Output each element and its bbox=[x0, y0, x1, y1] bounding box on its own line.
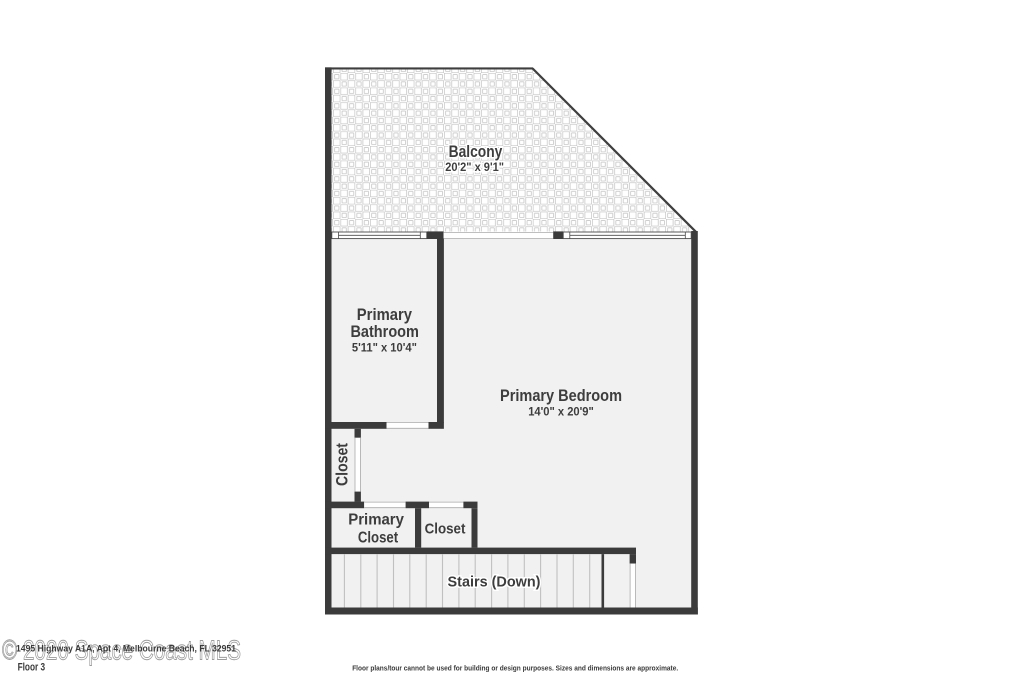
svg-text:Primary: Primary bbox=[348, 512, 404, 529]
svg-text:Floor plans/tour cannot be use: Floor plans/tour cannot be used for buil… bbox=[352, 664, 678, 673]
svg-text:Balcony: Balcony bbox=[449, 143, 503, 161]
svg-text:1495 Highway A1A, Apt 4, Melbo: 1495 Highway A1A, Apt 4, Melbourne Beach… bbox=[16, 644, 236, 654]
svg-text:Floor 3: Floor 3 bbox=[18, 662, 45, 674]
svg-text:14'0" x 20'9": 14'0" x 20'9" bbox=[528, 406, 594, 418]
svg-text:5'11" x 10'4": 5'11" x 10'4" bbox=[352, 342, 417, 354]
svg-text:Bathroom: Bathroom bbox=[350, 323, 419, 341]
svg-text:Primary: Primary bbox=[357, 306, 413, 324]
svg-text:Closet: Closet bbox=[358, 529, 398, 546]
svg-text:Closet: Closet bbox=[333, 443, 352, 486]
svg-text:Primary Bedroom: Primary Bedroom bbox=[500, 387, 622, 405]
svg-text:Closet: Closet bbox=[425, 521, 466, 537]
svg-text:20'2" x 9'1": 20'2" x 9'1" bbox=[445, 162, 504, 174]
svg-text:Stairs (Down): Stairs (Down) bbox=[448, 573, 541, 590]
